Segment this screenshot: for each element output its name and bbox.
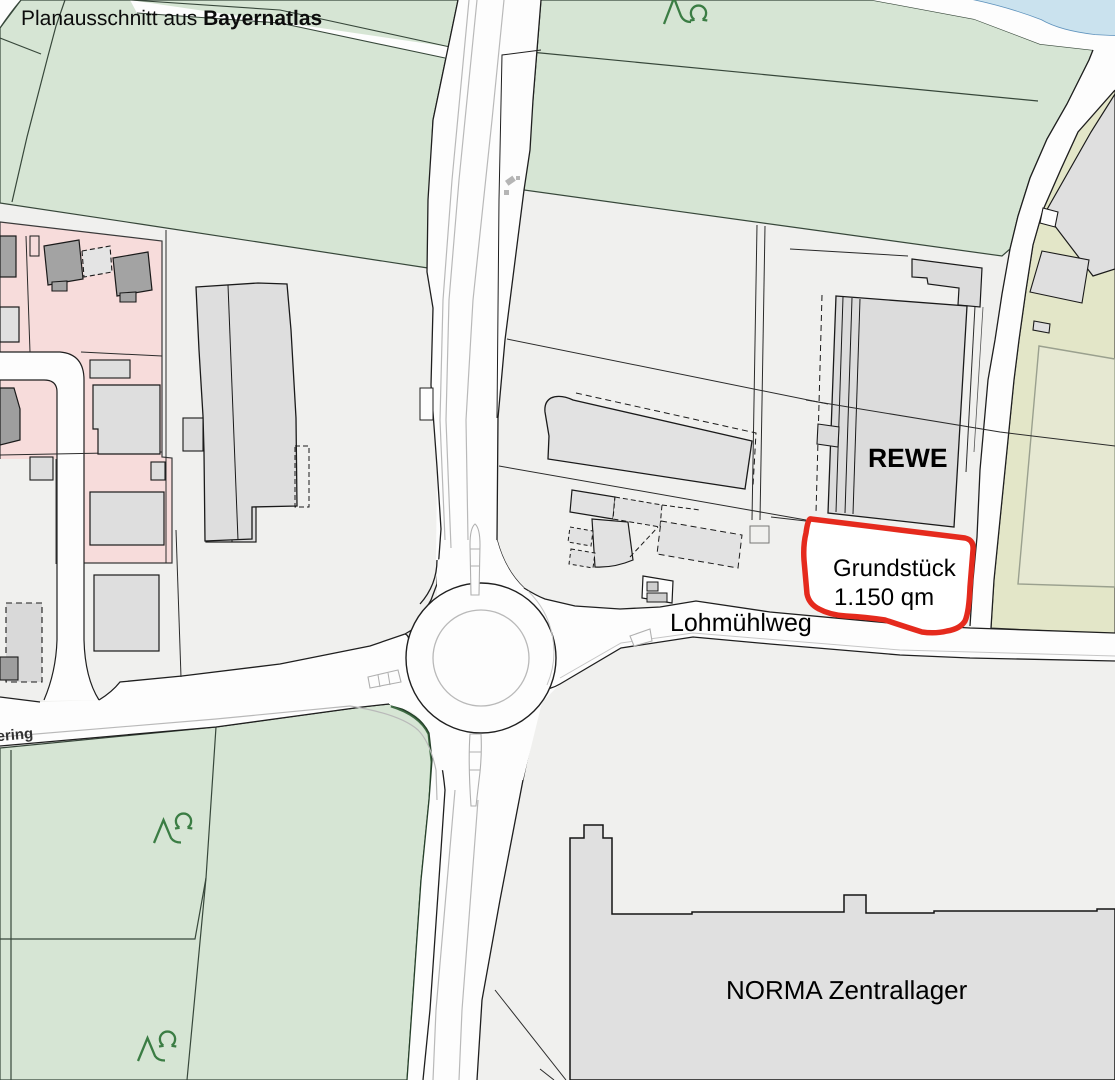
svg-text:NORMA Zentrallager: NORMA Zentrallager (726, 975, 968, 1005)
svg-text:Planausschnitt aus Bayernatlas: Planausschnitt aus Bayernatlas (21, 7, 322, 30)
svg-text:ering: ering (0, 725, 34, 745)
svg-text:1.150 qm: 1.150 qm (834, 584, 934, 611)
svg-text:REWE: REWE (868, 443, 948, 473)
svg-text:Grundstück: Grundstück (833, 555, 957, 582)
svg-text:Lohmühlweg: Lohmühlweg (670, 609, 812, 637)
